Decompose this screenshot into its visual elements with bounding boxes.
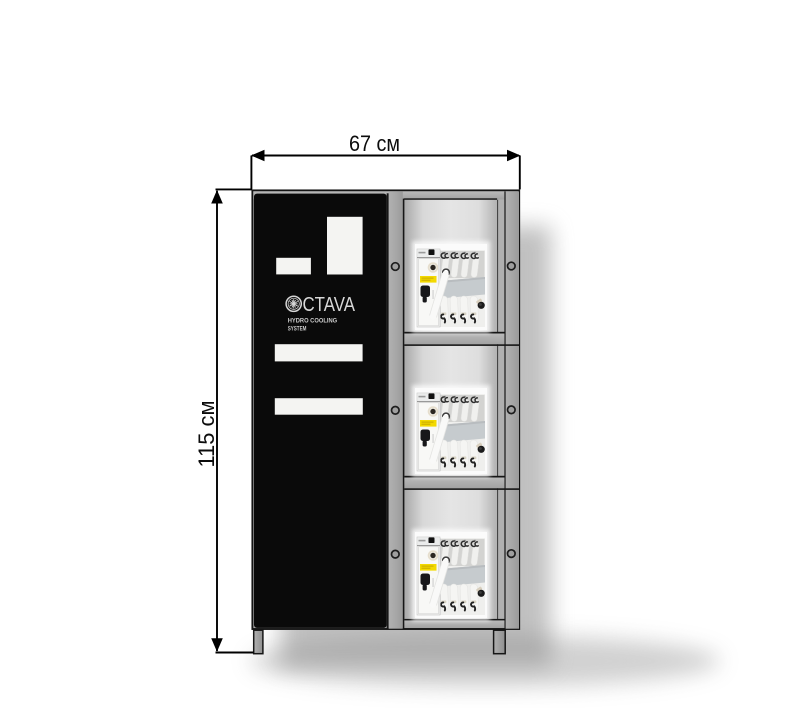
svg-text:CTAVA: CTAVA [303, 293, 356, 316]
svg-text:67 см: 67 см [349, 131, 400, 156]
svg-text:SYSTEM: SYSTEM [288, 325, 307, 332]
svg-text:115 см: 115 см [194, 401, 219, 468]
svg-text:HYDRO COOLING: HYDRO COOLING [288, 317, 338, 324]
